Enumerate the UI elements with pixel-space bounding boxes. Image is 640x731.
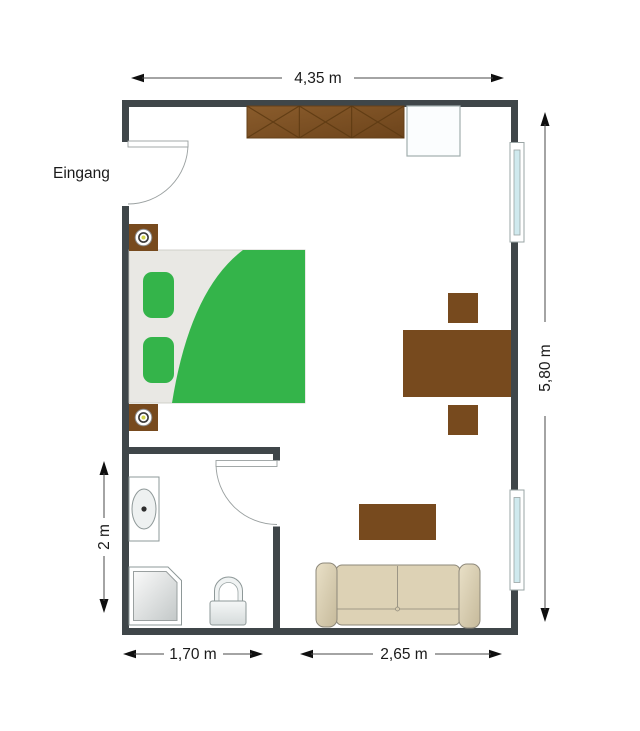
door-swing-arc: [128, 144, 188, 204]
wardrobe: [247, 106, 404, 138]
entrance-door: [121, 141, 188, 206]
nightstand: [129, 404, 158, 431]
window-glass: [514, 150, 520, 235]
chair: [448, 405, 478, 435]
floor-plan: 4,35 m 5,80 m 2 m 1,70 m 2,65 m Eingang: [0, 0, 640, 731]
bed-pillow: [143, 337, 174, 383]
window-glass: [514, 498, 520, 583]
dimension-bath-height: 2 m: [96, 461, 113, 613]
shower-tray: [134, 572, 178, 621]
dining-table: [403, 330, 511, 397]
cabinet: [407, 106, 460, 156]
dimension-bath-height-label: 2 m: [96, 524, 113, 550]
floor-plan-page: 4,35 m 5,80 m 2 m 1,70 m 2,65 m Eingang: [0, 0, 640, 731]
bathroom-door: [216, 461, 281, 527]
dimension-bath-width: 1,70 m: [123, 646, 263, 663]
sink: [129, 477, 159, 541]
sofa-body: [336, 565, 460, 625]
dimension-bath-width-label: 1,70 m: [169, 646, 216, 663]
coffee-table: [359, 504, 436, 540]
chair: [448, 293, 478, 323]
arrow-up-icon: [100, 461, 109, 475]
nightstand: [129, 224, 158, 251]
toilet-tank: [210, 601, 246, 625]
dimension-living-width: 2,65 m: [300, 646, 502, 663]
door-swing-arc: [216, 464, 277, 525]
door-leaf: [216, 461, 277, 467]
dimension-top-width: 4,35 m: [131, 70, 504, 87]
dimension-top-width-label: 4,35 m: [294, 70, 341, 87]
sofa-armrest: [316, 563, 337, 627]
arrow-down-icon: [100, 599, 109, 613]
window: [510, 490, 524, 590]
sofa: [316, 563, 480, 628]
dimension-living-width-label: 2,65 m: [380, 646, 427, 663]
sink-drain-icon: [141, 506, 146, 511]
window: [510, 143, 524, 243]
shower: [129, 567, 182, 625]
bed: [129, 250, 305, 403]
toilet: [210, 577, 246, 625]
door-leaf: [128, 141, 188, 147]
sofa-armrest: [459, 564, 480, 628]
entrance-label: Eingang: [53, 165, 110, 182]
arrow-down-icon: [541, 608, 550, 622]
dimension-right-height: 5,80 m: [537, 112, 554, 622]
dimension-right-height-label: 5,80 m: [537, 344, 554, 391]
arrow-up-icon: [541, 112, 550, 126]
bed-pillow: [143, 272, 174, 318]
